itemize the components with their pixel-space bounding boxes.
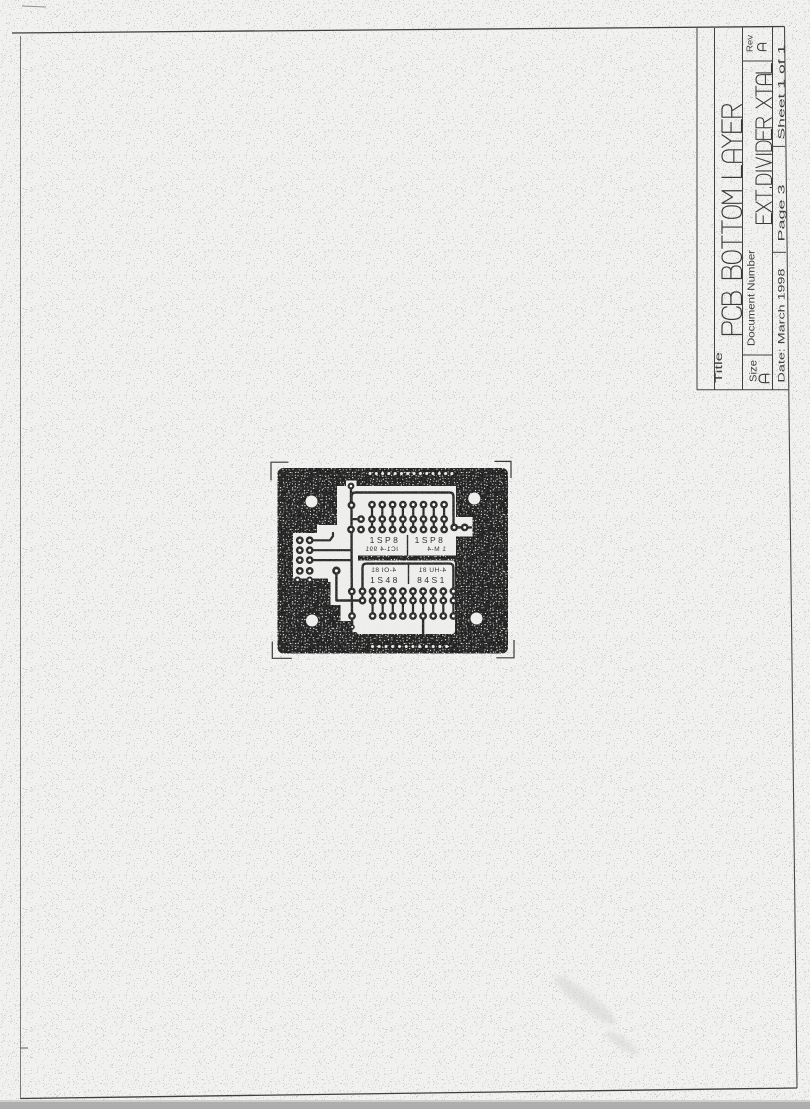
svg-text:Date: March 1998: Date: March 1998 [777,269,787,383]
svg-text:Title: Title [713,352,725,383]
svg-text:Rev: Rev [746,35,755,52]
svg-text:Sheet 1 of 1: Sheet 1 of 1 [777,45,787,140]
svg-text:Document Number: Document Number [746,249,758,346]
svg-text:Size: Size [749,360,760,382]
svg-text:Page 3: Page 3 [777,185,787,242]
